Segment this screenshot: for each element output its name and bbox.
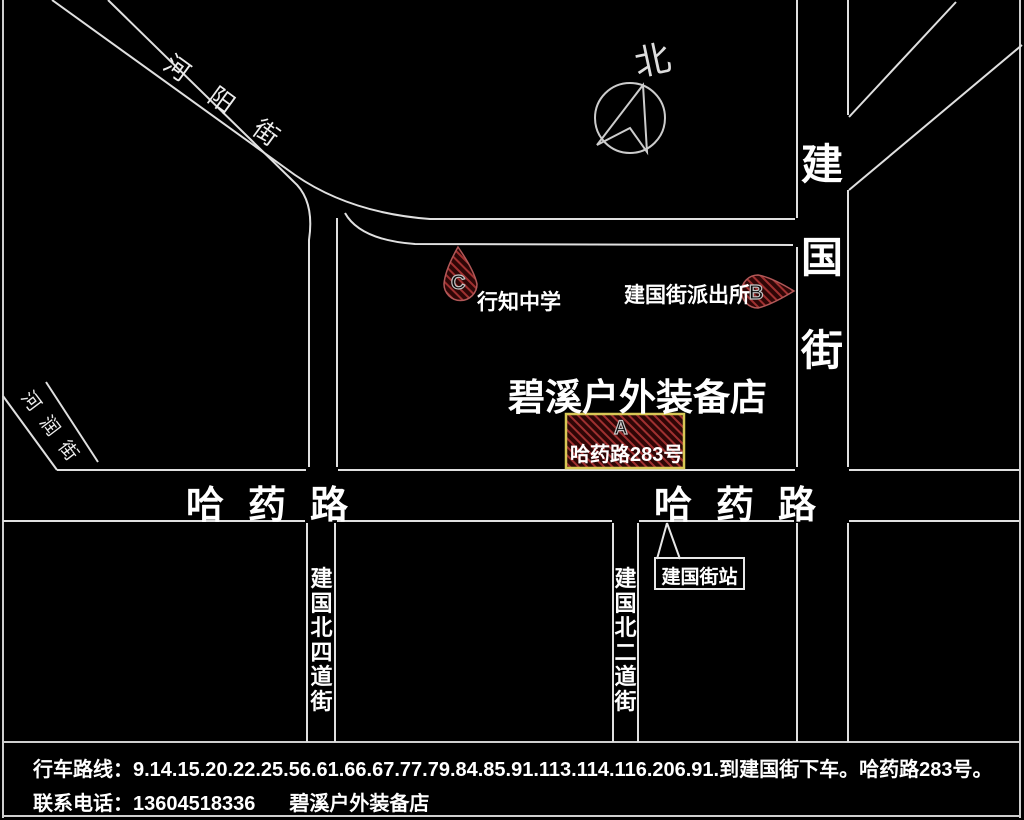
- road-label-hayao-west: 哈药路: [186, 474, 372, 529]
- footer-contact-line: 联系电话：13604518336碧溪户外装备店: [33, 787, 429, 816]
- street-label-jianguo: 建国街: [799, 118, 845, 397]
- poi-label-school: 行知中学: [477, 286, 561, 316]
- marker-b-letter: B: [749, 282, 763, 304]
- marker-c-pin: C: [444, 247, 477, 301]
- footer-route-line: 行车路线：9.14.15.20.22.25.56.61.66.67.77.79.…: [33, 753, 992, 782]
- footer-phone: 联系电话：13604518336: [33, 793, 255, 815]
- street-label-jianguo-n2: 建国北二道街: [613, 567, 638, 715]
- marker-c-letter: C: [451, 272, 465, 294]
- footer-store-name: 碧溪户外装备店: [289, 793, 429, 815]
- road-label-hayao-east: 哈药路: [654, 474, 840, 529]
- marker-a-address: 哈药路283号: [570, 438, 680, 467]
- street-label-jianguo-n4: 建国北四道街: [309, 567, 334, 715]
- poi-label-police: 建国街派出所: [624, 279, 750, 309]
- north-compass-icon: [595, 83, 665, 153]
- marker-a-letter: A: [614, 418, 628, 439]
- map-canvas: C B A 北 河阳街 河润街 行知中学 建国街派出所 碧溪户外装备店 哈药路2…: [0, 0, 1024, 820]
- store-name: 碧溪户外装备店: [508, 367, 767, 421]
- bus-stop-label: 建国街站: [657, 562, 742, 589]
